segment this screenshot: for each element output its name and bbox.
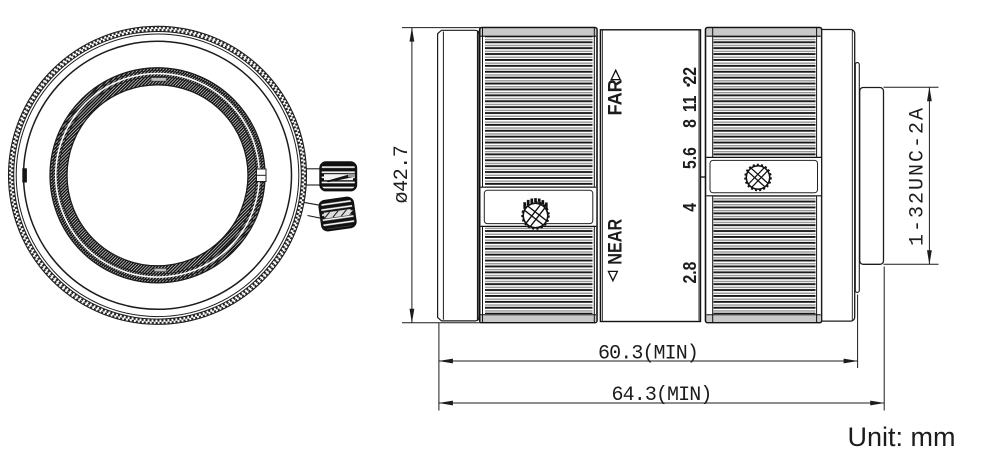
svg-text:NEAR: NEAR	[604, 219, 626, 265]
svg-text:60.3(MIN): 60.3(MIN)	[598, 343, 698, 366]
svg-text:4: 4	[679, 203, 701, 212]
svg-text:ø42.7: ø42.7	[391, 145, 414, 203]
svg-text:FAR: FAR	[604, 79, 626, 116]
svg-text:8: 8	[679, 119, 701, 128]
svg-text:64.3(MIN): 64.3(MIN)	[612, 384, 712, 407]
svg-text:1-32UNC-2A: 1-32UNC-2A	[906, 106, 929, 246]
svg-text:22: 22	[679, 67, 701, 84]
svg-text:11: 11	[679, 95, 701, 112]
svg-text:Unit: mm: Unit: mm	[848, 422, 956, 452]
svg-text:5.6: 5.6	[679, 147, 701, 169]
svg-text:2.8: 2.8	[679, 261, 701, 283]
